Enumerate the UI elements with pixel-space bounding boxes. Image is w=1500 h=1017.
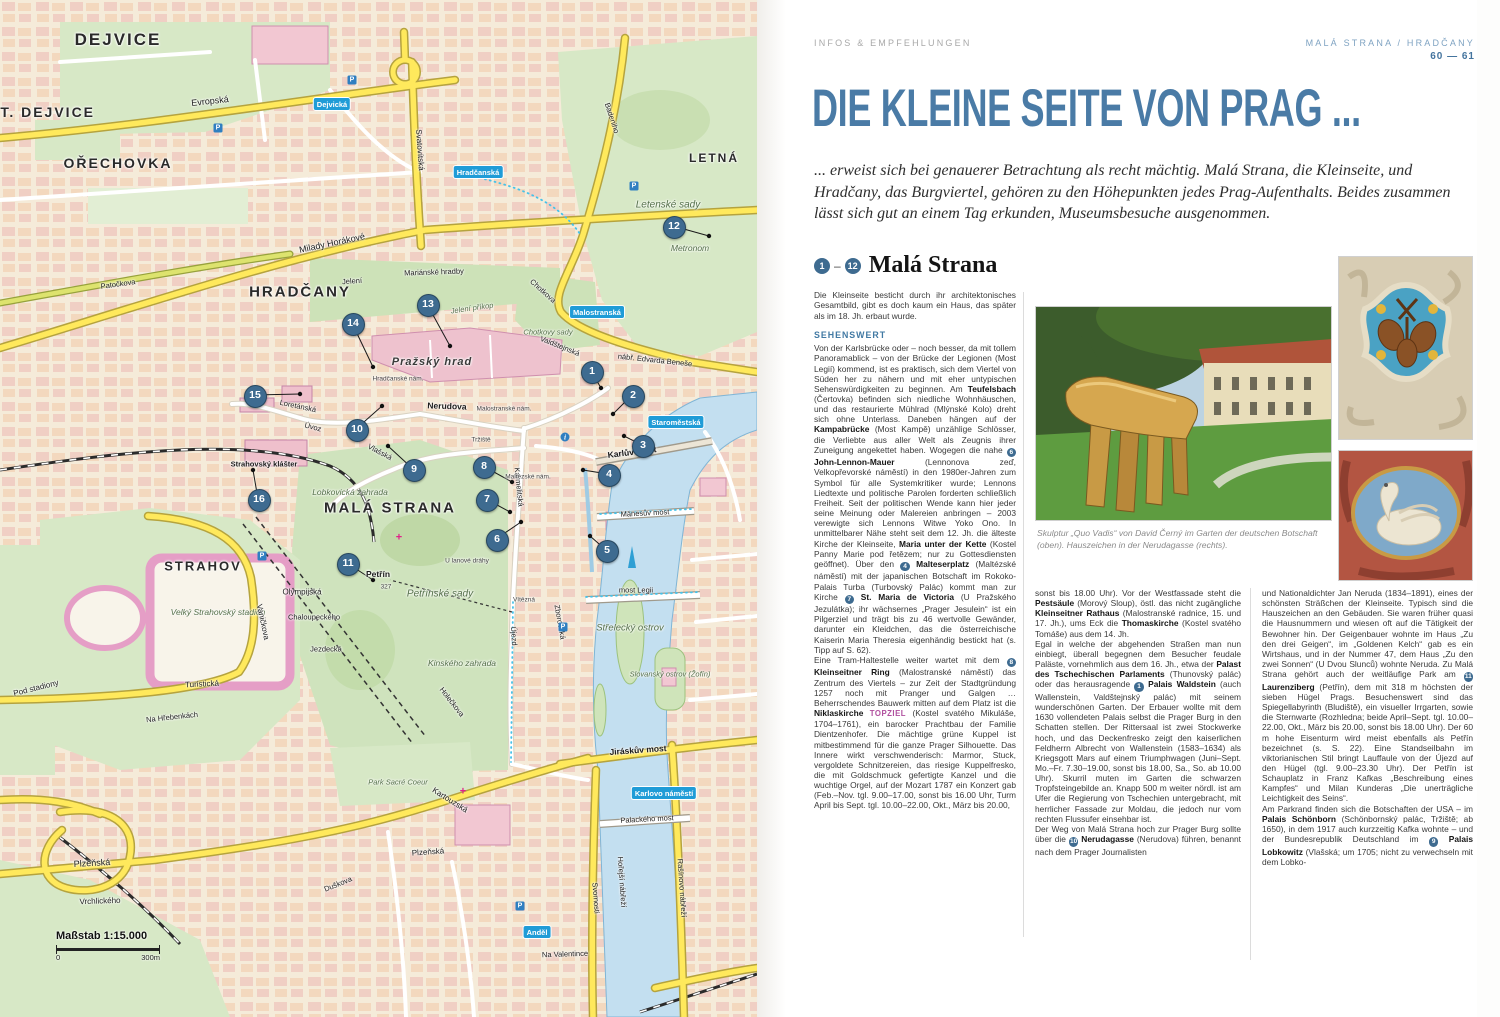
map-marker-3: 3: [632, 435, 655, 458]
map-marker-2: 2: [622, 385, 645, 408]
hospital-icon: +: [460, 787, 466, 798]
map-marker-5: 5: [596, 540, 619, 563]
map-label: Metronom: [671, 243, 709, 253]
guidebook-spread: DEJVICEST. DEJVICEOŘECHOVKAHRADČANYMALÁ …: [0, 0, 1500, 1017]
metro-station-label: Hradčanská: [454, 166, 503, 178]
thumb-violins-sign: [1338, 256, 1473, 440]
parking-icon: P: [516, 902, 525, 911]
map-label: DEJVICE: [75, 30, 162, 50]
quo-vadis-illustration: [1036, 307, 1332, 521]
map-label: Turistická: [185, 679, 219, 690]
map-marker-7: 7: [476, 489, 499, 512]
map-label: OŘECHOVKA: [63, 155, 172, 171]
lead-paragraph: Die Kleinseite besticht durch ihr archit…: [814, 290, 1016, 321]
map-label: Vítězná: [513, 597, 535, 604]
map-label: LETNÁ: [689, 151, 739, 165]
photo-caption: Skulptur „Quo Vadis“ von David Černý im …: [1037, 528, 1322, 551]
page-gutter: [757, 0, 810, 1017]
scale-bar: [56, 948, 160, 951]
column-rule-2: [1250, 588, 1251, 960]
map-marker-16: 16: [248, 489, 271, 512]
scale-start: 0: [56, 953, 60, 962]
map-scale: Maßstab 1:15.000 0 300m: [56, 930, 160, 962]
kicker-left: INFOS & EMPFEHLUNGEN: [814, 38, 972, 48]
map-label: Jelení: [342, 276, 363, 286]
range-end-badge: 12: [845, 258, 861, 274]
map-label: U lanové dráhy: [445, 558, 489, 565]
parking-icon: P: [214, 124, 223, 133]
violins-sign-illustration: [1339, 257, 1473, 440]
map-marker-1: 1: [581, 361, 604, 384]
map-label: STRAHOV: [164, 559, 242, 574]
map-label: Hradčanské nám.: [373, 376, 424, 383]
article-heading: 1 – 12 Malá Strana: [814, 252, 997, 279]
map-label: Petřínské sady: [407, 589, 473, 600]
map-label: Chaloupeckého: [288, 613, 340, 622]
page-title: DIE KLEINE SEITE VON PRAG ...: [812, 82, 1361, 135]
metro-station-label: Malostranská: [570, 306, 624, 318]
metro-station-label: Dejvická: [314, 98, 350, 110]
map-marker-6: 6: [486, 529, 509, 552]
map-label: Velký Strahovský stadión: [171, 607, 266, 617]
text-column-2: sonst bis 18.00 Uhr). Vor der Westfassad…: [1035, 588, 1241, 857]
map-label: Maltézské nám.: [505, 474, 551, 481]
map-marker-13: 13: [417, 294, 440, 317]
subhead-sehenswert: SEHENSWERT: [814, 330, 1016, 340]
map-label: Újezd: [509, 626, 519, 646]
parking-icon: P: [630, 182, 639, 191]
range-start-badge: 1: [814, 258, 830, 274]
section-title: Malá Strana: [869, 252, 998, 279]
text-column-3: und Nationaldichter Jan Neruda (1834–189…: [1262, 588, 1473, 867]
map-label: Jezdecká: [310, 645, 342, 654]
map-marker-8: 8: [473, 456, 496, 479]
column-rule-1: [1023, 292, 1024, 937]
map-label: 327: [381, 584, 392, 591]
metro-station-label: Staroměstská: [648, 416, 703, 428]
map-marker-11: 11: [337, 553, 360, 576]
article-page: INFOS & EMPFEHLUNGEN MALÁ STRANA / HRADČ…: [810, 0, 1477, 1017]
hospital-icon: +: [396, 533, 402, 544]
map-label: Olympijská: [282, 588, 321, 597]
page-numbers: 60 — 61: [1430, 51, 1475, 62]
intro-paragraph: ... erweist sich bei genauerer Betrachtu…: [814, 160, 1476, 225]
map-label: HRADČANY: [249, 284, 351, 301]
map-label: MALÁ STRANA: [324, 500, 456, 517]
text-column-1: Die Kleinseite besticht durch ihr archit…: [814, 290, 1016, 811]
map-page: DEJVICEST. DEJVICEOŘECHOVKAHRADČANYMALÁ …: [0, 0, 757, 1017]
body-text-2: sonst bis 18.00 Uhr). Vor der Westfassad…: [1035, 588, 1241, 857]
map-label: Petřín: [366, 569, 390, 579]
map-label: Slovanský ostrov (Žofín): [630, 670, 711, 679]
map-marker-14: 14: [342, 313, 365, 336]
map-label: Strahovský klášter: [231, 460, 298, 469]
map-label: Park Sacré Coeur: [368, 778, 428, 787]
scale-label: Maßstab 1:15.000: [56, 930, 160, 942]
map-label: Vrchlického: [79, 896, 120, 906]
map-marker-4: 4: [598, 464, 621, 487]
map-label: Letenské sady: [636, 200, 701, 211]
map-label: Kinského zahrada: [428, 658, 496, 668]
range-dash: –: [834, 259, 841, 273]
photo-quo-vadis: [1035, 306, 1332, 521]
map-label: most Legii: [619, 586, 653, 595]
parking-icon: P: [559, 623, 568, 632]
thumb-swan-sign: [1338, 450, 1473, 581]
map-label: Nerudova: [427, 400, 467, 411]
map-marker-9: 9: [403, 459, 426, 482]
map-label: ST. DEJVICE: [0, 104, 95, 120]
body-text-1: Von der Karlsbrücke oder – noch besser, …: [814, 343, 1016, 810]
map-label: Střelecký ostrov: [596, 623, 664, 634]
map-label: Chotkovy sady: [523, 328, 572, 337]
metro-station-label: Anděl: [524, 926, 551, 938]
map-label: Lobkovická zahrada: [312, 487, 388, 497]
scale-end: 300m: [141, 953, 160, 962]
swan-sign-illustration: [1339, 451, 1473, 581]
parking-icon: P: [348, 76, 357, 85]
metro-station-label: Karlovo náměstí: [632, 787, 696, 799]
map-label: Malostranské nám.: [477, 406, 532, 413]
map-label: Tržiště: [471, 437, 490, 444]
info-icon: i: [561, 433, 570, 442]
map-marker-10: 10: [346, 419, 369, 442]
map-marker-15: 15: [244, 385, 267, 408]
body-text-3: und Nationaldichter Jan Neruda (1834–189…: [1262, 588, 1473, 867]
map-marker-12: 12: [663, 216, 686, 239]
map-label: Na Valentince: [542, 949, 588, 960]
map-label: Plzeňská: [73, 857, 110, 869]
parking-icon: P: [258, 552, 267, 561]
kicker-right: MALÁ STRANA / HRADČANY: [1306, 38, 1475, 48]
map-label: Pražský hrad: [392, 356, 472, 368]
